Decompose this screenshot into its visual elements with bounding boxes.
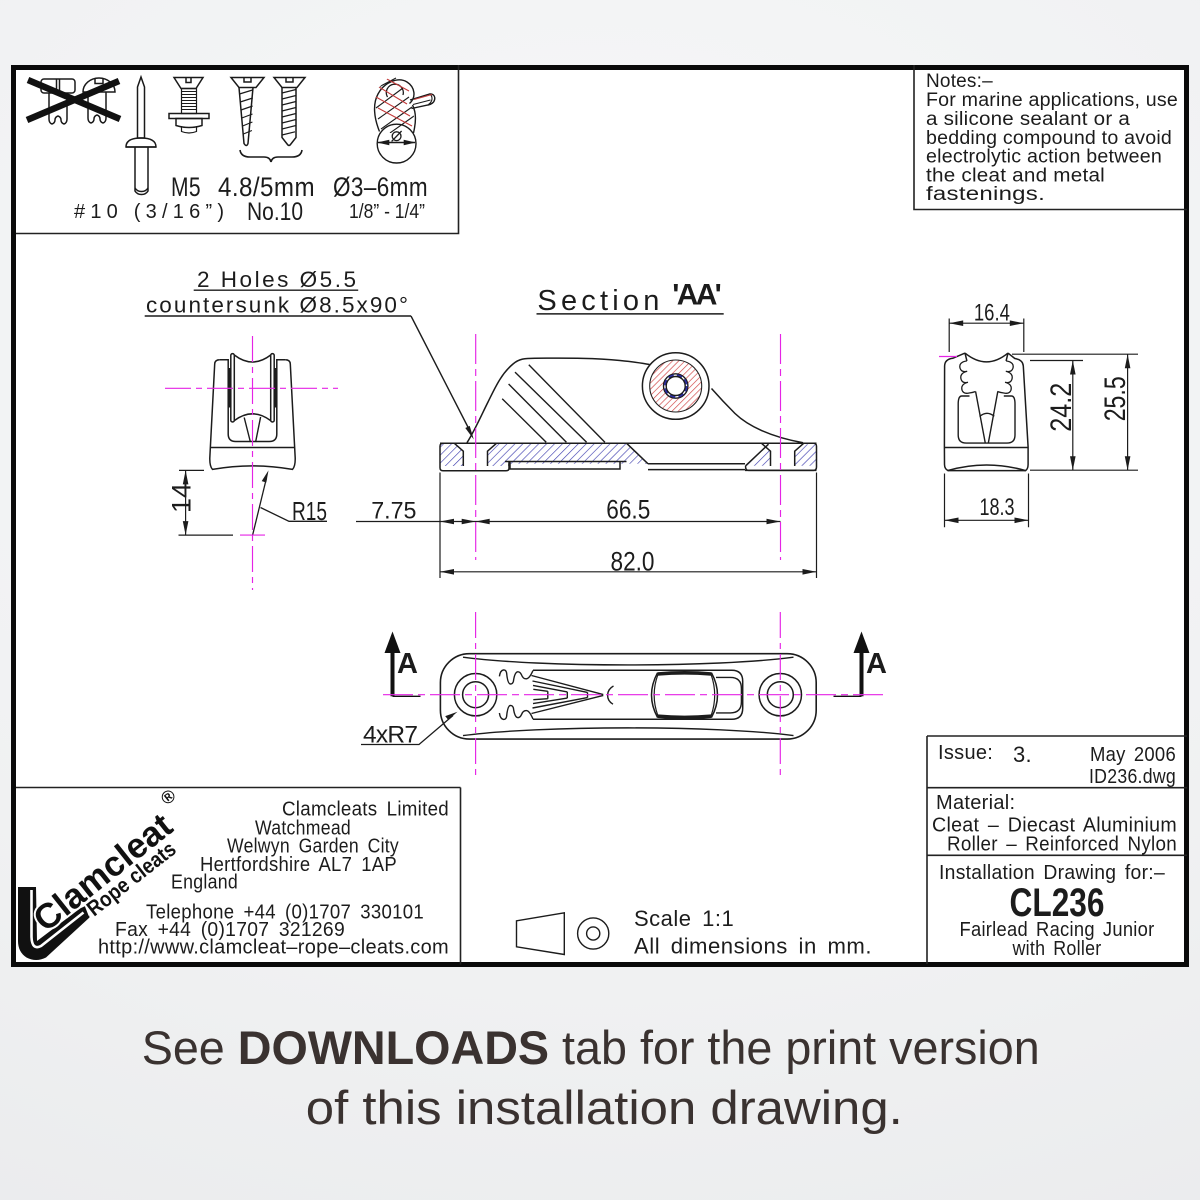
svg-text:Notes:–: Notes:–: [926, 71, 993, 92]
svg-text:with Roller: with Roller: [1012, 938, 1102, 960]
svg-text:Scale 1:1: Scale 1:1: [634, 906, 734, 931]
svg-text:ID236.dwg: ID236.dwg: [1089, 766, 1176, 788]
svg-text:3.: 3.: [1013, 742, 1032, 767]
svg-text:See DOWNLOADS tab for the prin: See DOWNLOADS tab for the print version: [142, 1021, 1040, 1074]
svg-text:For marine applications, use: For marine applications, use: [926, 90, 1178, 111]
svg-text:No.10: No.10: [247, 198, 303, 226]
svg-text:England: England: [171, 872, 238, 894]
svg-text:fastenings.: fastenings.: [926, 184, 1045, 205]
svg-text:countersunk Ø8.5x90°: countersunk Ø8.5x90°: [146, 293, 409, 318]
svg-text:A: A: [397, 648, 418, 680]
svg-text:A: A: [866, 648, 887, 680]
svg-text:http://www.clamcleat–rope–clea: http://www.clamcleat–rope–cleats.com: [98, 937, 449, 959]
svg-text:'AA': 'AA': [672, 278, 722, 311]
svg-text:electrolytic action between: electrolytic action between: [926, 147, 1162, 168]
svg-text:Issue:: Issue:: [938, 742, 993, 764]
svg-text:18.3: 18.3: [980, 494, 1015, 521]
svg-text:16.4: 16.4: [974, 299, 1010, 326]
svg-text:66.5: 66.5: [606, 494, 650, 524]
svg-text:a silicone sealant or a: a silicone sealant or a: [926, 109, 1130, 130]
svg-text:1/8” - 1/4”: 1/8” - 1/4”: [349, 201, 425, 223]
svg-text:of this installation drawing.: of this installation drawing.: [306, 1081, 903, 1134]
svg-text:M5: M5: [171, 172, 201, 202]
svg-text:7.75: 7.75: [371, 497, 416, 524]
svg-text:All dimensions in mm.: All dimensions in mm.: [634, 934, 872, 959]
svg-text:Ø3–6mm: Ø3–6mm: [333, 172, 428, 202]
svg-text:2 Holes Ø5.5: 2 Holes Ø5.5: [197, 267, 357, 292]
svg-text:Material:: Material:: [936, 792, 1015, 814]
svg-text:Roller – Reinforced Nylon: Roller – Reinforced Nylon: [947, 834, 1177, 856]
svg-text:14: 14: [167, 483, 197, 513]
svg-text:May 2006: May 2006: [1090, 744, 1176, 766]
